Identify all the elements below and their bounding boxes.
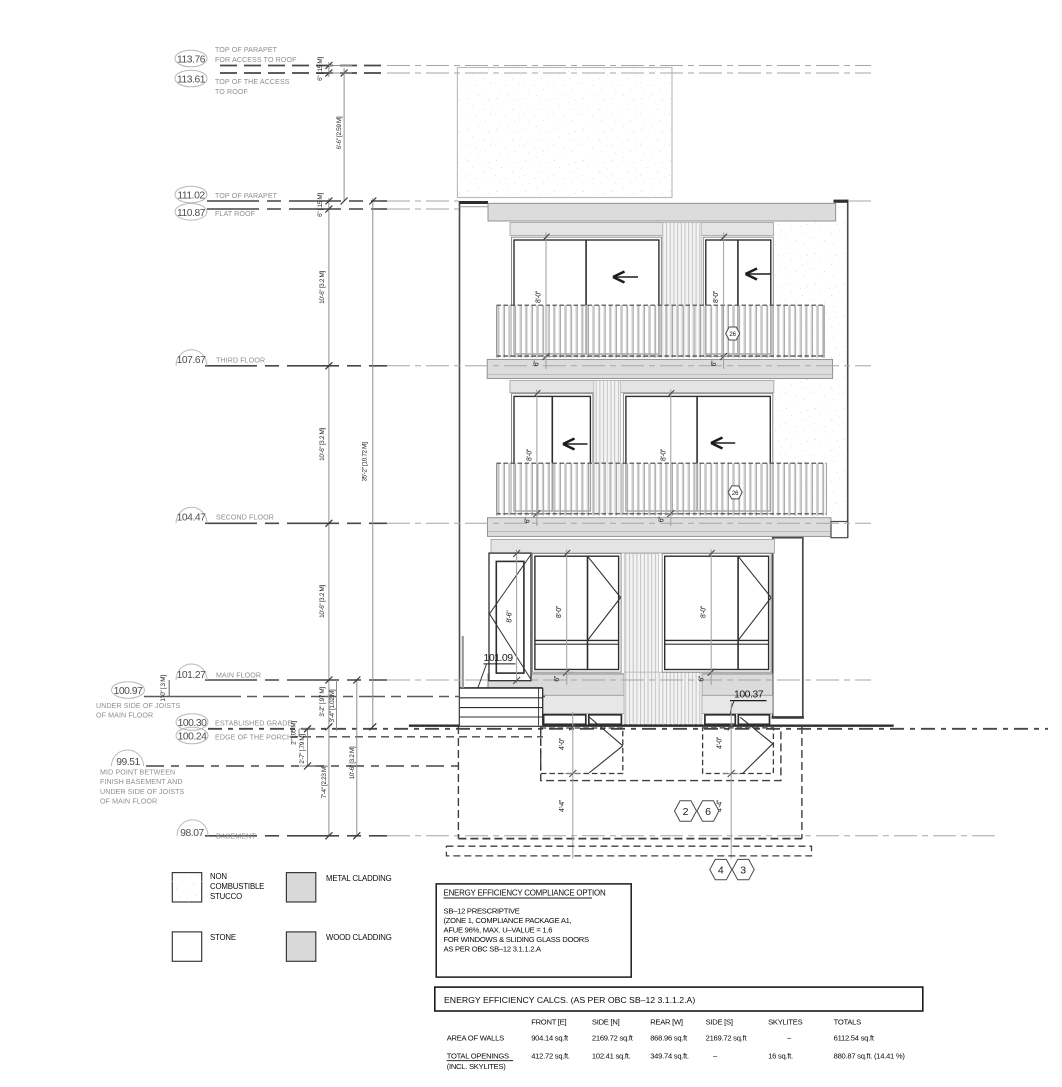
svg-text:412.72 sq.ft.: 412.72 sq.ft.	[531, 1051, 570, 1060]
svg-text:3'-2" [.97 M]: 3'-2" [.97 M]	[319, 687, 326, 717]
svg-text:6": 6"	[699, 675, 706, 681]
svg-text:8'-0": 8'-0"	[713, 290, 720, 303]
svg-text:110.87: 110.87	[177, 208, 206, 219]
svg-text:8'-6": 8'-6"	[507, 610, 514, 623]
svg-text:AS PER OBC SB–12 3.1.1.2.A: AS PER OBC SB–12 3.1.1.2.A	[444, 945, 543, 954]
svg-text:8'-0": 8'-0"	[536, 290, 543, 303]
svg-text:OF MAIN FLOOR: OF MAIN FLOOR	[100, 798, 157, 806]
svg-text:10'-6" [3.2 M]: 10'-6" [3.2 M]	[319, 271, 326, 304]
svg-text:1'-0" [.3 M]: 1'-0" [.3 M]	[160, 675, 167, 702]
svg-text:6" [.15 M]: 6" [.15 M]	[317, 193, 324, 217]
svg-text:10'-6" [3.2 M]: 10'-6" [3.2 M]	[349, 746, 356, 779]
svg-text:7'-4" [2.23 M]: 7'-4" [2.23 M]	[321, 765, 328, 798]
svg-text:SB–12 PRESCRIPTIVE: SB–12 PRESCRIPTIVE	[444, 906, 520, 915]
svg-text:OF MAIN FLOOR: OF MAIN FLOOR	[96, 712, 153, 720]
svg-text:WOOD CLADDING: WOOD CLADDING	[326, 933, 392, 942]
svg-text:2: 2	[683, 806, 689, 818]
svg-text:4'-0": 4'-0"	[559, 737, 566, 750]
svg-text:101.27: 101.27	[177, 670, 207, 681]
svg-text:STUCCO: STUCCO	[210, 892, 242, 901]
svg-text:AREA OF WALLS: AREA OF WALLS	[447, 1034, 504, 1043]
svg-text:TOP OF PARAPET: TOP OF PARAPET	[215, 46, 278, 54]
svg-text:100.37: 100.37	[734, 689, 764, 701]
svg-text:AFUE 96%, MAX. U–VALUE = 1.6: AFUE 96%, MAX. U–VALUE = 1.6	[444, 926, 553, 935]
svg-text:99.51: 99.51	[116, 757, 140, 768]
svg-text:ENERGY EFFICIENCY COMPLIANCE O: ENERGY EFFICIENCY COMPLIANCE OPTION	[444, 889, 606, 898]
svg-text:10'-6" [3.2 M]: 10'-6" [3.2 M]	[319, 585, 326, 618]
svg-text:100.24: 100.24	[178, 732, 208, 743]
svg-text:COMBUSTIBLE: COMBUSTIBLE	[210, 882, 264, 891]
svg-text:REAR [W]: REAR [W]	[650, 1017, 683, 1026]
svg-text:UNDER SIDE OF JOISTS: UNDER SIDE OF JOISTS	[100, 788, 185, 796]
svg-text:3'-4" [1.02 M]: 3'-4" [1.02 M]	[329, 689, 336, 722]
svg-text:2169.72 sq.ft: 2169.72 sq.ft	[592, 1034, 634, 1043]
svg-text:100.97: 100.97	[114, 686, 144, 697]
svg-text:–: –	[713, 1051, 718, 1060]
svg-text:8'-0": 8'-0"	[701, 605, 708, 618]
svg-text:16 sq.ft.: 16 sq.ft.	[768, 1051, 793, 1060]
svg-text:ENERGY EFFICIENCY CALCS. (AS P: ENERGY EFFICIENCY CALCS. (AS PER OBC SB–…	[444, 995, 695, 1005]
svg-text:6": 6"	[711, 360, 718, 366]
svg-text:MID POINT BETWEEN: MID POINT BETWEEN	[100, 769, 175, 777]
svg-text:FRONT [E]: FRONT [E]	[531, 1017, 566, 1026]
svg-text:UNDER SIDE OF JOISTS: UNDER SIDE OF JOISTS	[96, 702, 181, 710]
svg-text:102.41 sq.ft.: 102.41 sq.ft.	[592, 1051, 631, 1060]
svg-text:TOTAL OPENINGS: TOTAL OPENINGS	[447, 1051, 509, 1060]
svg-text:26: 26	[729, 332, 736, 338]
svg-text:904.14 sq.ft: 904.14 sq.ft	[531, 1034, 569, 1043]
svg-text:113.61: 113.61	[177, 75, 206, 86]
svg-text:2'-7" [.79 M]: 2'-7" [.79 M]	[299, 734, 306, 764]
svg-text:(ZONE 1, COMPLIANCE PACKAGE A1: (ZONE 1, COMPLIANCE PACKAGE A1,	[444, 916, 572, 925]
svg-text:104.47: 104.47	[177, 513, 207, 524]
svg-text:10'-6" [3.2 M]: 10'-6" [3.2 M]	[319, 428, 326, 461]
svg-text:6": 6"	[554, 675, 561, 681]
svg-text:TOP OF PARAPET: TOP OF PARAPET	[215, 192, 278, 200]
svg-text:–: –	[787, 1034, 792, 1043]
svg-text:8'-0": 8'-0"	[660, 448, 667, 461]
svg-text:THIRD FLOOR: THIRD FLOOR	[216, 357, 265, 365]
svg-text:3: 3	[740, 865, 746, 877]
svg-text:TOTALS: TOTALS	[834, 1017, 862, 1026]
svg-text:2" [.05 M]: 2" [.05 M]	[291, 721, 298, 745]
svg-text:6": 6"	[534, 360, 541, 366]
svg-text:8'-0": 8'-0"	[556, 605, 563, 618]
svg-text:ESTABLISHED GRADE: ESTABLISHED GRADE	[215, 720, 292, 728]
svg-text:6112.54 sq.ft: 6112.54 sq.ft	[834, 1034, 875, 1043]
svg-text:26: 26	[732, 491, 739, 497]
svg-text:FINISH BASEMENT AND: FINISH BASEMENT AND	[100, 778, 183, 786]
svg-text:SIDE [S]: SIDE [S]	[706, 1017, 733, 1026]
svg-text:2169.72 sq.ft: 2169.72 sq.ft	[706, 1034, 748, 1043]
svg-text:868.96 sq.ft: 868.96 sq.ft	[650, 1034, 688, 1043]
svg-text:NON: NON	[210, 872, 227, 881]
svg-text:101.09: 101.09	[484, 652, 514, 664]
svg-text:4: 4	[718, 865, 724, 877]
svg-text:6": 6"	[658, 516, 665, 522]
svg-text:4'-0": 4'-0"	[717, 736, 724, 749]
svg-text:STONE: STONE	[210, 933, 236, 942]
svg-text:EDGE OF THE PORCH: EDGE OF THE PORCH	[215, 734, 292, 742]
svg-text:113.76: 113.76	[177, 55, 206, 66]
svg-text:6: 6	[705, 806, 711, 818]
svg-text:MAIN FLOOR: MAIN FLOOR	[216, 672, 261, 680]
svg-text:BASEMENT: BASEMENT	[216, 833, 256, 841]
svg-text:880.87 sq.ft. (14.41 %): 880.87 sq.ft. (14.41 %)	[834, 1051, 906, 1060]
svg-text:FOR WINDOWS & SLIDING GLASS DO: FOR WINDOWS & SLIDING GLASS DOORS	[444, 935, 590, 944]
svg-text:107.67: 107.67	[177, 355, 207, 366]
svg-text:4'-4": 4'-4"	[559, 799, 566, 812]
svg-text:SECOND FLOOR: SECOND FLOOR	[216, 514, 274, 522]
svg-text:111.02: 111.02	[177, 191, 205, 202]
svg-text:349.74 sq.ft.: 349.74 sq.ft.	[650, 1051, 689, 1060]
svg-text:35'-2" [10.72 M]: 35'-2" [10.72 M]	[362, 442, 369, 482]
svg-text:6" [.15 M]: 6" [.15 M]	[317, 57, 324, 81]
svg-text:TOP OF THE ACCESS: TOP OF THE ACCESS	[215, 78, 290, 86]
svg-text:FLAT ROOF: FLAT ROOF	[215, 210, 256, 218]
svg-text:6'-6" [2.59 M]: 6'-6" [2.59 M]	[336, 116, 343, 149]
svg-text:SKYLITES: SKYLITES	[768, 1017, 802, 1026]
svg-text:SIDE [N]: SIDE [N]	[592, 1017, 620, 1026]
svg-text:FOR ACCESS TO ROOF: FOR ACCESS TO ROOF	[215, 56, 297, 64]
svg-text:8'-0": 8'-0"	[526, 448, 533, 461]
svg-text:6": 6"	[524, 517, 531, 523]
svg-text:TO ROOF: TO ROOF	[215, 88, 248, 96]
svg-text:METAL CLADDING: METAL CLADDING	[326, 874, 392, 883]
svg-text:(INCL. SKYLITES): (INCL. SKYLITES)	[447, 1062, 507, 1071]
svg-text:98.07: 98.07	[180, 828, 204, 839]
